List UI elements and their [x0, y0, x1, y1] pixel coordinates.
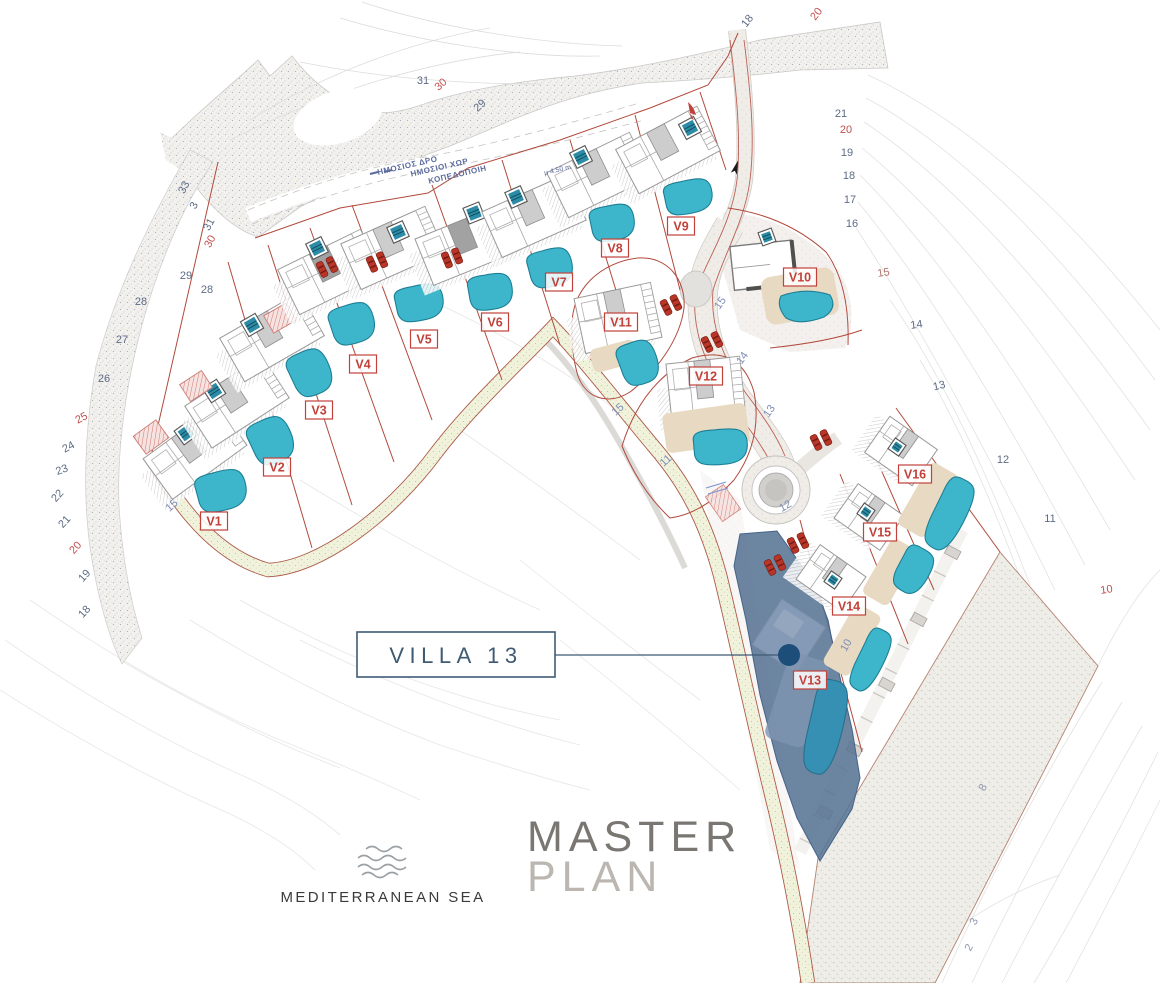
- svg-text:V15: V15: [869, 526, 891, 540]
- svg-text:V7: V7: [551, 276, 566, 290]
- svg-text:29: 29: [180, 270, 192, 282]
- svg-text:V10: V10: [789, 271, 811, 285]
- svg-text:28: 28: [201, 284, 213, 296]
- svg-text:V9: V9: [673, 220, 688, 234]
- svg-text:V6: V6: [487, 316, 502, 330]
- svg-text:15: 15: [877, 266, 891, 280]
- svg-text:V8: V8: [607, 242, 622, 256]
- svg-text:27: 27: [116, 334, 128, 346]
- svg-text:V2: V2: [269, 461, 284, 475]
- svg-text:28: 28: [135, 296, 147, 308]
- svg-text:19: 19: [841, 147, 853, 159]
- svg-text:10: 10: [1100, 583, 1114, 597]
- svg-text:PLAN: PLAN: [527, 853, 663, 901]
- svg-text:MEDITERRANEAN SEA: MEDITERRANEAN SEA: [281, 889, 486, 906]
- svg-text:26: 26: [98, 373, 110, 385]
- svg-text:21: 21: [835, 108, 847, 120]
- svg-text:20: 20: [840, 124, 852, 136]
- svg-text:VILLA 13: VILLA 13: [389, 643, 522, 668]
- svg-text:V1: V1: [206, 515, 221, 529]
- svg-text:V16: V16: [904, 468, 926, 482]
- svg-text:16: 16: [846, 218, 858, 230]
- svg-text:V4: V4: [355, 358, 370, 372]
- svg-text:14: 14: [910, 318, 924, 332]
- svg-text:V12: V12: [695, 370, 717, 384]
- svg-text:11: 11: [1044, 513, 1055, 525]
- svg-text:12: 12: [997, 454, 1009, 466]
- svg-text:31: 31: [417, 75, 429, 87]
- svg-text:V11: V11: [610, 316, 632, 330]
- svg-text:V14: V14: [838, 600, 860, 614]
- svg-text:V13: V13: [799, 674, 821, 688]
- svg-text:17: 17: [844, 194, 856, 206]
- svg-text:18: 18: [843, 170, 855, 182]
- svg-text:V5: V5: [416, 333, 431, 347]
- svg-text:V3: V3: [311, 404, 326, 418]
